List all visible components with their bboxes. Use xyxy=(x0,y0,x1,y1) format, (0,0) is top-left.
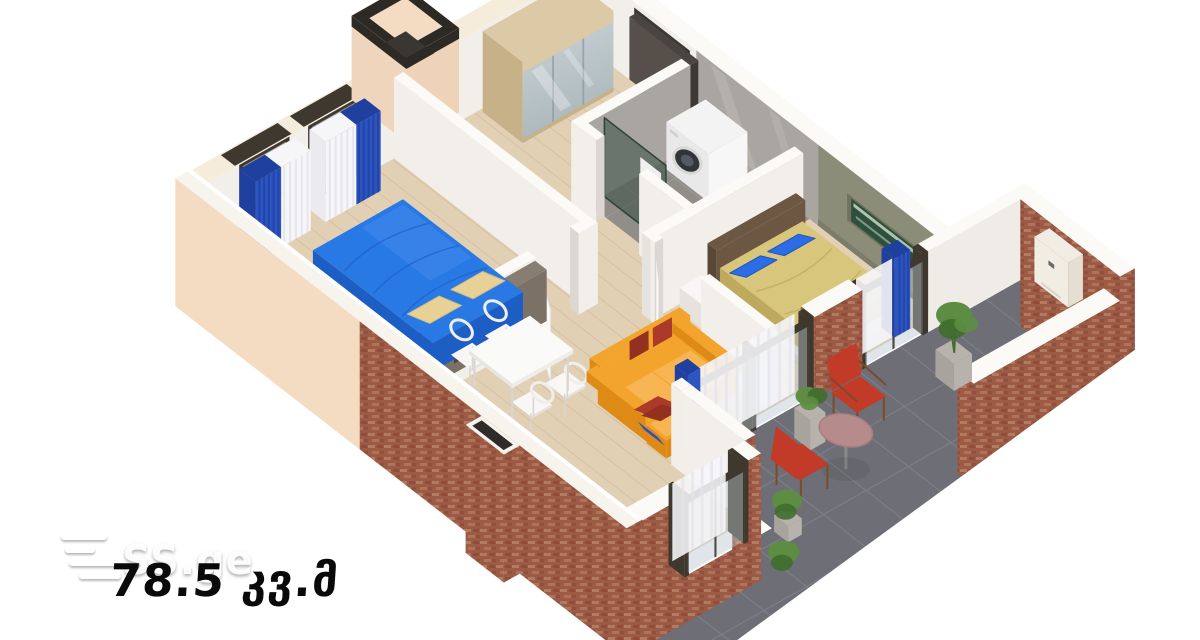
sw-shaft xyxy=(466,416,520,583)
apartment-3d-floorplan: SS.ge 78.5 კვ.მ xyxy=(0,0,1200,640)
floorplan-scene xyxy=(0,0,1200,640)
